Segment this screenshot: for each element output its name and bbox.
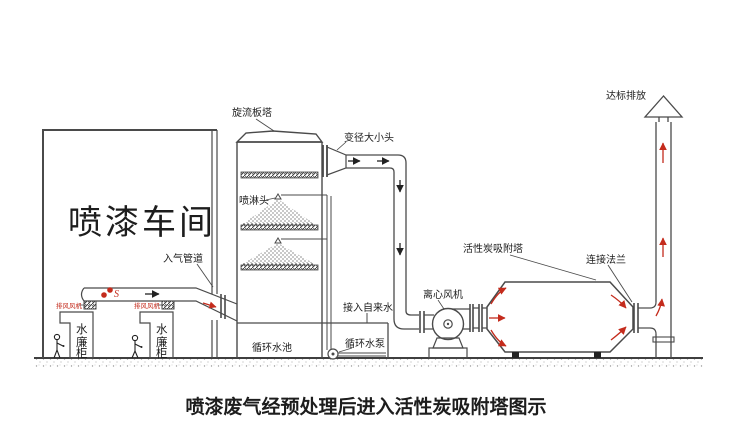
workshop-name: 喷漆车间 xyxy=(68,204,216,242)
svg-text:水: 水 xyxy=(156,323,168,336)
tap-water-label: 接入自来水 xyxy=(343,301,393,314)
booth-fan-label-1: 排风风机 xyxy=(56,301,83,310)
outlet-flange xyxy=(634,302,656,334)
booth-fan-label-2: 排风风机 xyxy=(134,301,161,310)
fan-leader xyxy=(438,300,444,309)
fan-label: 离心风机 xyxy=(423,288,463,301)
diagram-canvas: 喷漆车间 排风风机 排风风机 S 入气管道 水 廉 柜 水 xyxy=(0,0,732,431)
inlet-duct-leader xyxy=(197,264,213,287)
carbon-tower-label: 活性炭吸附塔 xyxy=(463,242,523,255)
worker-1 xyxy=(54,334,65,358)
svg-text:廉: 廉 xyxy=(156,335,168,349)
svg-text:柜: 柜 xyxy=(156,347,168,360)
flange-label: 连接法兰 xyxy=(586,253,626,266)
svg-text:廉: 廉 xyxy=(76,335,88,349)
worker-2 xyxy=(132,335,143,358)
cabinet-2-label: 水 廉 柜 xyxy=(156,323,168,360)
connecting-duct-arrows xyxy=(348,161,400,255)
flex-joint-mark: S xyxy=(114,289,119,300)
rain-cap xyxy=(645,96,682,117)
cabinet-1-label: 水 廉 柜 xyxy=(76,323,88,360)
svg-text:柜: 柜 xyxy=(76,347,88,360)
workshop-right-wall xyxy=(212,130,217,358)
svg-text:水: 水 xyxy=(76,323,88,336)
centrifugal-fan xyxy=(420,304,487,358)
process-diagram: 喷漆车间 排风风机 排风风机 S 入气管道 水 廉 柜 水 xyxy=(0,0,732,431)
inlet-duct-label: 入气管道 xyxy=(163,252,203,265)
carbon-adsorption-tank xyxy=(487,282,633,358)
workshop-outline xyxy=(43,129,217,358)
reducer-label: 变径大小头 xyxy=(344,131,394,144)
scrubber-tower-leader xyxy=(256,119,274,131)
spray-water-riser xyxy=(327,195,331,350)
discharge-label: 达标排放 xyxy=(606,89,646,102)
reducer xyxy=(323,145,346,177)
scrubber-tower-label: 旋流板塔 xyxy=(232,106,272,119)
carbon-tower-leader xyxy=(510,255,596,280)
duct-joint-marks xyxy=(101,287,113,298)
spray-head-label: 喷淋头 xyxy=(239,194,269,207)
spray-level-2 xyxy=(243,238,327,264)
stack-flow-arrows xyxy=(656,143,663,316)
reducer-leader xyxy=(337,142,346,150)
pool-label: 循环水池 xyxy=(252,341,292,354)
tank-flow-arrows xyxy=(489,288,626,346)
ground xyxy=(34,358,703,368)
diagram-title: 喷漆废气经预处理后进入活性炭吸附塔图示 xyxy=(185,395,546,418)
